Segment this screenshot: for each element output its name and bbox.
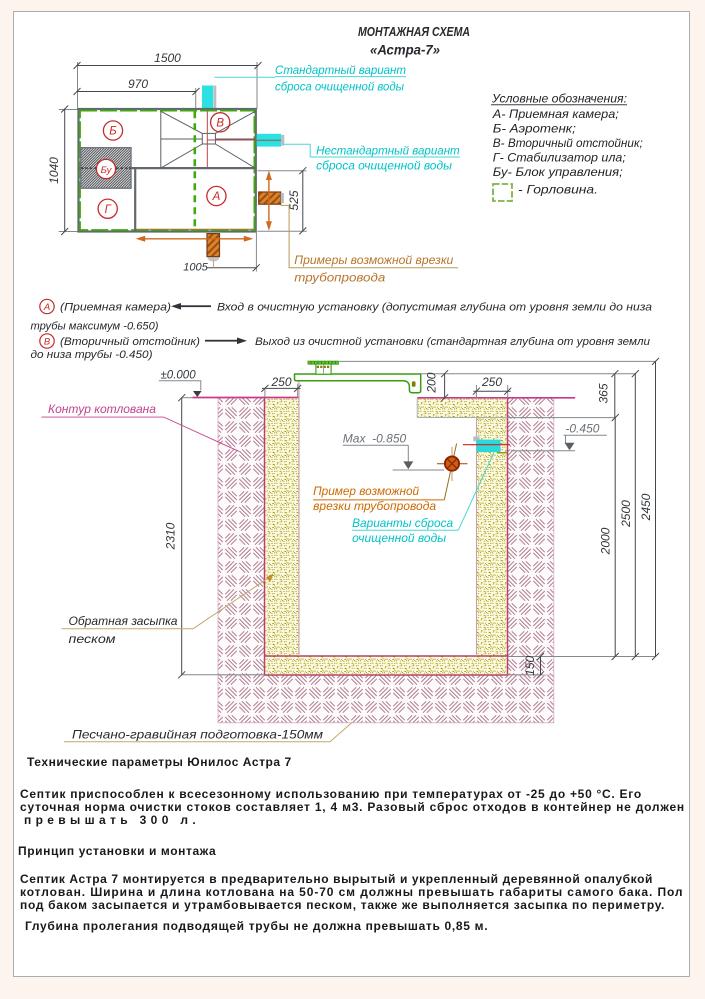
svg-text:Г: Г (105, 204, 112, 216)
svg-text:(Приемная камера): (Приемная камера) (60, 302, 171, 314)
svg-text:2450: 2450 (639, 493, 653, 521)
svg-text:трубы максимум -0.650): трубы максимум -0.650) (31, 321, 159, 333)
svg-text:1040: 1040 (47, 157, 61, 184)
svg-text:Условные обозначения:: Условные обозначения: (491, 92, 627, 106)
svg-text:1500: 1500 (154, 51, 181, 65)
svg-text:сброса очищенной воды: сброса очищенной воды (275, 82, 405, 94)
svg-text:Обратная засыпка: Обратная засыпка (69, 614, 178, 628)
svg-text:В- Вторичный отстойник;: В- Вторичный отстойник; (493, 136, 643, 150)
svg-text:сброса очищенной воды: сброса очищенной воды (316, 160, 452, 172)
svg-text:Выход из очистной установки (с: Выход из очистной установки (стандартная… (255, 336, 651, 348)
svg-text:А- Приемная камера;: А- Приемная камера; (492, 107, 619, 121)
svg-text:очищенной воды: очищенной воды (352, 531, 446, 545)
svg-text:1005: 1005 (183, 262, 208, 274)
svg-text:250: 250 (270, 375, 291, 389)
svg-text:Пример возможной: Пример возможной (313, 484, 419, 498)
svg-text:врезки трубопровода: врезки трубопровода (313, 499, 436, 513)
svg-text:Б: Б (109, 126, 117, 138)
svg-text:Б- Аэротенк;: Б- Аэротенк; (493, 122, 576, 136)
svg-text:Контур котлована: Контур котлована (48, 402, 156, 416)
svg-text:А: А (212, 191, 221, 203)
svg-text:Песчано-гравийная подготовка-1: Песчано-гравийная подготовка-150мм (72, 728, 323, 742)
svg-text:Варианты сброса: Варианты сброса (352, 516, 453, 530)
svg-text:Бу: Бу (101, 165, 113, 176)
svg-text:- Горловина.: - Горловина. (518, 183, 598, 197)
svg-text:Бу- Блок управления;: Бу- Блок управления; (493, 165, 623, 179)
svg-text:МОНТАЖНАЯ СХЕМА: МОНТАЖНАЯ СХЕМА (358, 24, 470, 39)
svg-text:Примеры возможной врезки: Примеры возможной врезки (294, 253, 453, 267)
svg-text:970: 970 (128, 77, 148, 91)
svg-text:«Астра-7»: «Астра-7» (370, 43, 440, 58)
svg-text:В: В (216, 118, 224, 130)
svg-text:Стандартный вариант: Стандартный вариант (275, 65, 406, 77)
svg-text:(Вторичный отстойник): (Вторичный отстойник) (60, 336, 200, 348)
svg-text:Г- Стабилизатор ила;: Г- Стабилизатор ила; (493, 151, 626, 165)
svg-text:250: 250 (481, 375, 502, 389)
svg-text:В: В (44, 337, 51, 348)
svg-text:песком: песком (69, 632, 116, 646)
svg-text:2500: 2500 (619, 500, 633, 528)
svg-text:А: А (43, 302, 50, 313)
svg-text:до низа трубы -0.450): до низа трубы -0.450) (31, 349, 153, 361)
svg-text:200: 200 (425, 372, 439, 393)
svg-text:Max -0.850: Max -0.850 (343, 431, 407, 445)
svg-text:Вход в очистную установку (доп: Вход в очистную установку (допустимая гл… (217, 302, 652, 314)
svg-text:2310: 2310 (164, 522, 178, 550)
svg-text:трубопровода: трубопровода (294, 271, 385, 285)
svg-text:2000: 2000 (599, 527, 613, 555)
svg-text:-0.450: -0.450 (565, 422, 599, 436)
svg-text:±0.000: ±0.000 (161, 370, 197, 382)
svg-text:Нестандартный вариант: Нестандартный вариант (316, 146, 460, 158)
svg-text:365: 365 (597, 383, 611, 403)
svg-text:150: 150 (523, 655, 537, 675)
